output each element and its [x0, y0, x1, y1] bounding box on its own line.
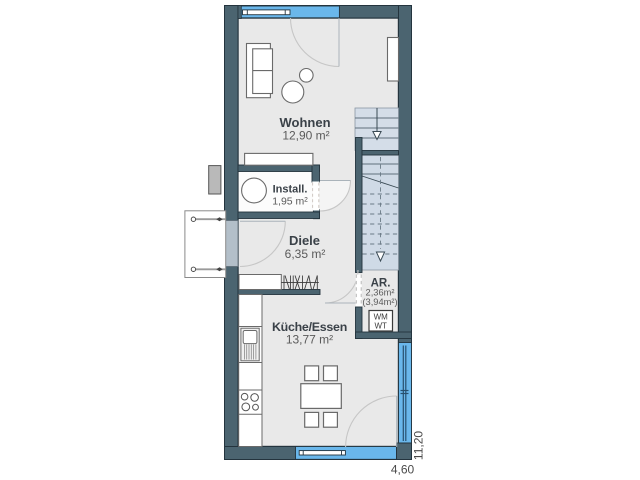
svg-text:11,20: 11,20	[412, 431, 426, 460]
svg-text:13,77 m²: 13,77 m²	[286, 332, 333, 346]
svg-text:Diele: Diele	[289, 233, 320, 248]
svg-text:1,95 m²: 1,95 m²	[272, 196, 308, 208]
svg-text:WT: WT	[374, 322, 387, 331]
svg-text:Install.: Install.	[273, 184, 308, 196]
svg-text:WM: WM	[374, 313, 389, 322]
svg-text:6,35 m²: 6,35 m²	[285, 247, 326, 261]
svg-text:4,60: 4,60	[391, 463, 415, 477]
svg-text:2,36m²: 2,36m²	[366, 287, 395, 297]
svg-text:(3,94m²): (3,94m²)	[362, 297, 397, 307]
svg-text:12,90 m²: 12,90 m²	[282, 129, 329, 143]
